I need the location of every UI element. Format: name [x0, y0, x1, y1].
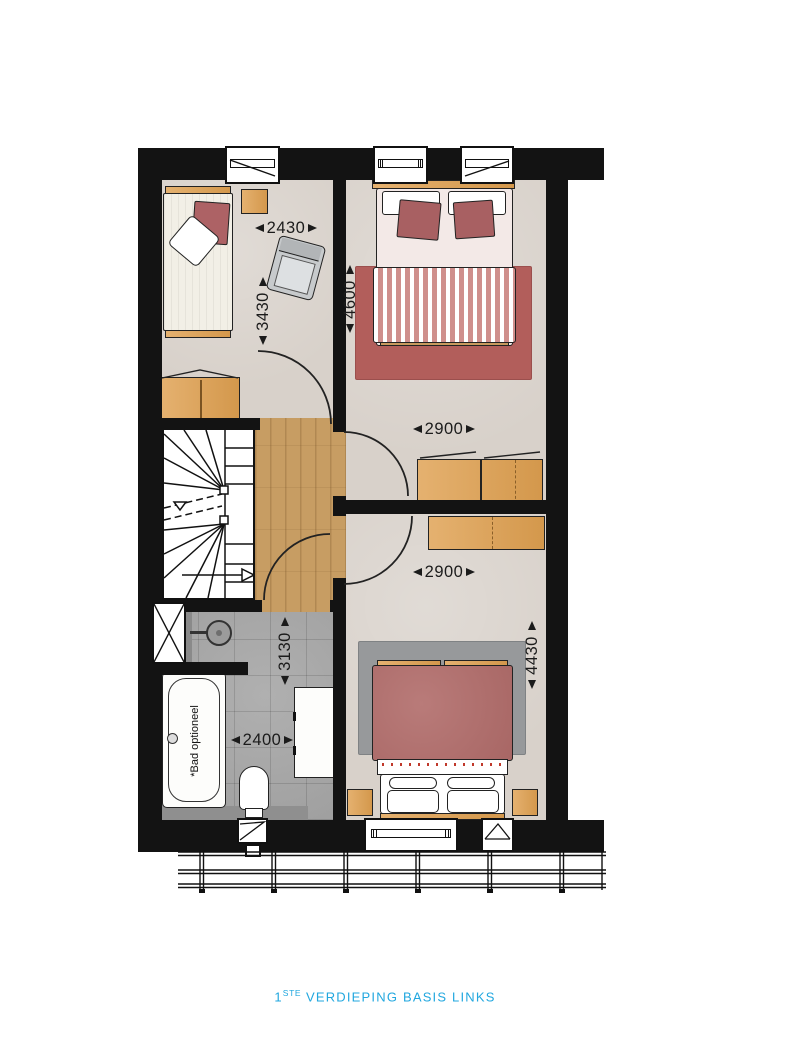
dim-arrow-down — [346, 324, 354, 333]
dim-arrow-up — [528, 621, 536, 630]
dim-arrow-up — [259, 277, 267, 286]
dimension-label-bedroom1-depth: 3430 — [253, 270, 273, 352]
dimension-label-bedroom2-depth: 4600 — [340, 258, 360, 340]
dim-arrow-right — [466, 568, 475, 576]
dim-arrow-right — [284, 736, 293, 744]
dim-arrow-right — [466, 425, 475, 433]
dimension-label-bedroom1-width: 2430 — [246, 219, 326, 237]
dim-arrow-right — [308, 224, 317, 232]
dimension-label-bathroom-width: 2400 — [222, 731, 302, 749]
caption-ordinal: STE — [283, 988, 301, 998]
dimension-label-bedroom2-width: 2900 — [404, 420, 484, 438]
dim-arrow-left — [413, 425, 422, 433]
dimension-label-bedroom3-width: 2900 — [404, 563, 484, 581]
dim-value: 2400 — [243, 731, 282, 750]
dim-arrow-up — [346, 265, 354, 274]
dim-arrow-left — [231, 736, 240, 744]
dim-value: 2430 — [267, 219, 306, 238]
plan-caption: 1STE VERDIEPING BASIS LINKS — [240, 988, 530, 1004]
caption-number: 1 — [274, 989, 282, 1004]
dim-value: 2900 — [425, 420, 464, 439]
dim-arrow-down — [259, 336, 267, 345]
dim-arrow-down — [528, 680, 536, 689]
dimension-label-bathroom-depth: 3130 — [275, 610, 295, 692]
dim-value: 2900 — [425, 563, 464, 582]
caption-title: VERDIEPING BASIS LINKS — [301, 989, 496, 1004]
dim-arrow-left — [413, 568, 422, 576]
railing — [178, 850, 606, 898]
floor-plan: *Bad optioneel — [0, 0, 798, 1040]
dim-value: 3430 — [254, 292, 273, 331]
dimension-label-bedroom3-depth: 4430 — [522, 614, 542, 696]
dim-value: 4430 — [523, 636, 542, 675]
dim-value: 4600 — [341, 280, 360, 319]
dim-arrow-up — [281, 617, 289, 626]
dim-value: 3130 — [276, 632, 295, 671]
dim-arrow-left — [255, 224, 264, 232]
dim-arrow-down — [281, 676, 289, 685]
